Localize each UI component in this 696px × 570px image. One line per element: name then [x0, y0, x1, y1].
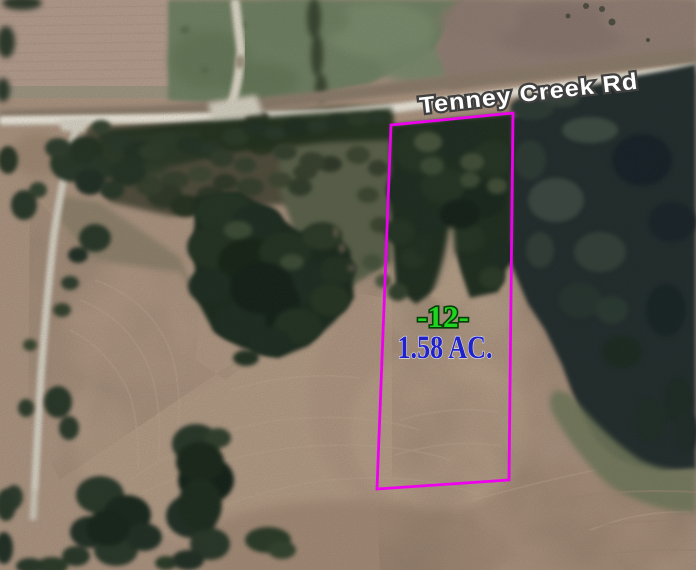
svg-text:1.58 AC.: 1.58 AC.	[398, 330, 493, 366]
svg-text:-12-: -12-	[417, 299, 469, 334]
